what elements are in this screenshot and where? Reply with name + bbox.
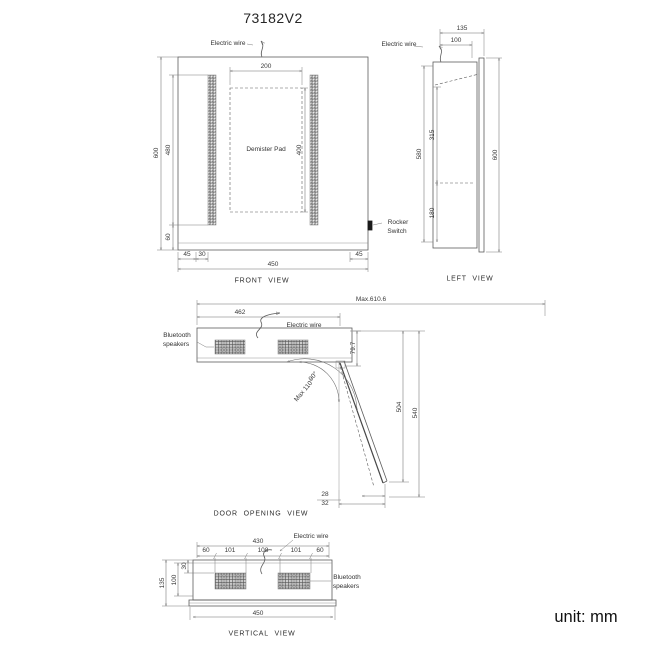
left-view-caption: LEFT VIEW [446,276,493,283]
led-strip-left [208,75,216,225]
dim-vertical-inner-depth: 100 [172,575,179,586]
technical-drawing-sheet: 73182V2 unit: mm Electric wire Demister … [0,0,650,650]
dim-vertical-seg-2: 101 [225,548,236,555]
left-view-drawing [414,29,502,252]
dim-door-max-extension: Max.610.6 [356,297,386,304]
electric-wire-front [261,41,263,57]
dim-left-lower-section: 180 [430,208,437,219]
drawing-linework [0,0,650,650]
dim-front-strip-inset: 30 [198,252,205,259]
dim-door-tip-offset-upper: 28 [321,492,328,499]
electric-wire-left [439,46,442,62]
dim-vertical-seg-4: 101 [291,548,302,555]
bluetooth-label-door-2: speakers [163,342,189,349]
dim-vertical-seg-1: 60 [202,548,209,555]
vertical-view-caption: VERTICAL VIEW [228,631,295,638]
demister-pad-label: Demister Pad [246,147,285,154]
bluetooth-label-door-1: Bluetooth [163,333,190,340]
dim-left-upper-section: 315 [430,130,437,141]
dim-front-left-margin: 45 [183,252,190,259]
electric-wire-label-vertical: Electric wire [293,534,328,541]
door-opening-view-drawing [197,300,545,508]
rocker-switch-label-1: Rocker [388,220,409,227]
speaker-right-vertical [278,573,310,589]
rocker-switch-icon [368,221,372,230]
dim-front-led-strip-height: 480 [166,145,173,156]
dim-left-overall-depth: 135 [457,26,468,33]
dim-front-demister-width: 200 [261,64,272,71]
dim-front-overall-width: 450 [268,262,279,269]
speaker-left-vertical [215,573,246,589]
dim-vertical-base-width: 450 [253,611,264,618]
dim-door-reach: 504 [397,402,404,413]
dim-vertical-top-width: 430 [253,539,264,546]
speaker-left [215,340,245,354]
dim-vertical-speaker-offset: 30 [182,562,189,569]
electric-wire-label-door: Electric wire [286,323,321,330]
dim-front-bottom-margin: 60 [166,233,173,240]
unit-label: unit: mm [554,609,617,626]
dim-door-hinge-offset: 79.7 [351,342,358,355]
speaker-right [278,340,308,354]
dim-front-demister-height: 400 [297,145,304,156]
dim-vertical-overall-depth: 135 [160,578,167,589]
dim-left-body-height: 580 [417,149,424,160]
drawing-title: 73182V2 [243,11,303,25]
led-strip-right [310,75,318,225]
dim-front-overall-height: 600 [154,148,161,159]
open-door-panel [340,363,383,483]
bluetooth-label-vertical-1: Bluetooth [333,575,360,582]
door-opening-view-caption: DOOR OPENING VIEW [214,511,309,518]
front-view-drawing [157,41,382,272]
electric-wire-label-front: Electric wire [210,41,245,48]
dim-left-overall-height: 600 [493,150,500,161]
dim-door-tip-offset-lower: 32 [321,501,328,508]
dim-vertical-seg-5: 60 [316,548,323,555]
rocker-switch-label-2: Switch [387,229,406,236]
dim-front-right-margin: 45 [355,252,362,259]
dim-door-total-reach: 540 [413,408,420,419]
front-view-caption: FRONT VIEW [235,278,290,285]
dim-left-body-depth: 100 [451,38,462,45]
electric-wire-label-left: Electric wire [381,42,416,49]
bluetooth-label-vertical-2: speakers [333,584,359,591]
vertical-view-drawing [162,540,336,620]
dim-door-body-width: 462 [235,310,246,317]
dim-vertical-seg-3: 108 [258,548,269,555]
